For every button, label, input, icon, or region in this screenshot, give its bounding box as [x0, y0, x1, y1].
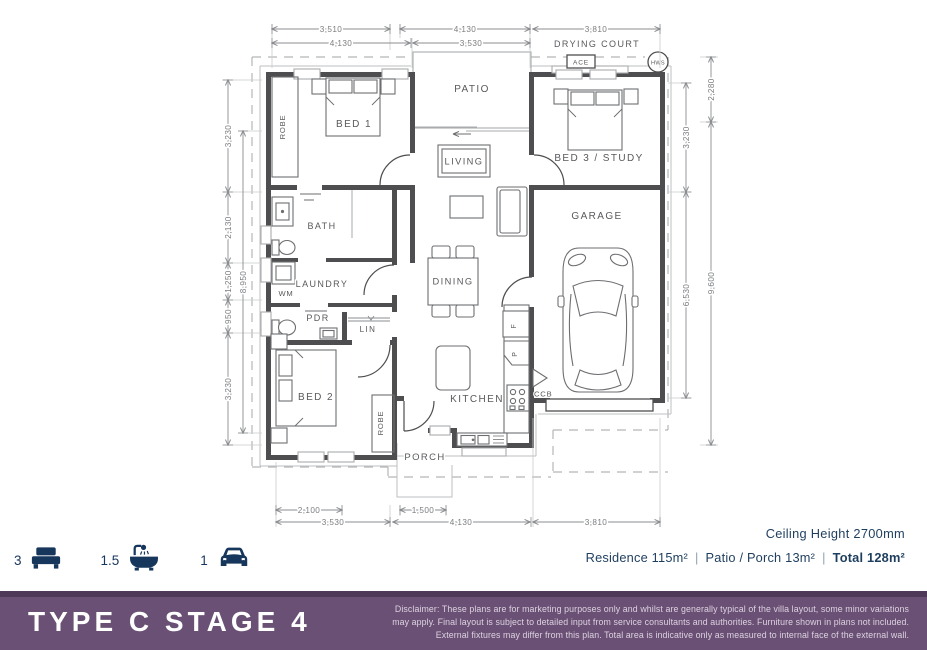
laundry-fixtures — [272, 262, 295, 284]
laundry-label: LAUNDRY — [296, 279, 349, 289]
bed2-label: BED 2 — [298, 392, 334, 403]
beds-summary: 3 — [14, 546, 61, 575]
robe2-label: ROBE — [376, 411, 385, 436]
dim-left-e: 3,230 — [224, 378, 233, 401]
linen-rail — [348, 316, 390, 321]
fridge-label: F — [511, 323, 518, 328]
robe1-label: ROBE — [278, 115, 287, 140]
patio-label: PATIO — [454, 84, 490, 95]
dim-right-outer-a: 2,280 — [707, 78, 716, 101]
dim-bottom-row1: 2,100 1,500 — [276, 505, 446, 515]
dim-left-outer: 3,230 2,130 1,250 950 3,230 — [223, 80, 233, 445]
hws-unit: HWS — [648, 52, 668, 72]
dim-left-b: 2,130 — [224, 216, 233, 239]
disclaimer-line: External fixtures may differ from this p… — [392, 629, 909, 642]
drying-court-label: DRYING COURT — [554, 39, 640, 49]
dim-right-outer: 2,280 9,600 — [706, 57, 716, 445]
dim-top1-a: 3,510 — [320, 25, 343, 34]
bed2-furniture — [271, 334, 336, 443]
residence-area: Residence 115m² — [586, 550, 688, 565]
dim-top2-a: 4,130 — [330, 39, 353, 48]
disclaimer: Disclaimer: These plans are for marketin… — [392, 603, 909, 642]
porch-label: PORCH — [404, 452, 445, 463]
dim-top-row2: 4,130 3,530 — [272, 38, 530, 48]
living-label: LIVING — [445, 157, 484, 167]
separator: | — [695, 550, 699, 565]
area-info: Ceiling Height 2700mm Residence 115m²|Pa… — [586, 526, 905, 565]
dim-top1-b: 4,130 — [454, 25, 477, 34]
bath-label: BATH — [308, 221, 337, 231]
ceiling-height: Ceiling Height 2700mm — [586, 526, 905, 541]
ccb-cupboard — [533, 369, 547, 387]
bath-icon — [128, 544, 160, 576]
garage-door — [546, 399, 653, 411]
footer-bar: TYPE C STAGE 4 Disclaimer: These plans a… — [0, 597, 927, 650]
dim-top1-c: 3,810 — [585, 25, 608, 34]
floor-plan-svg: ACE HWS BED 1 BED 2 BED 3 / STUDY PATIO … — [0, 0, 927, 530]
floor-plan: ACE HWS BED 1 BED 2 BED 3 / STUDY PATIO … — [0, 0, 927, 530]
disclaimer-line: may apply. Final layout is subject to de… — [392, 616, 909, 629]
dim-right-a: 3,230 — [682, 126, 691, 149]
car-icon — [217, 545, 251, 575]
bed3-study-label: BED 3 / STUDY — [554, 153, 643, 164]
summary-icons-row: 3 1.5 1 — [14, 541, 291, 579]
plan-title: TYPE C STAGE 4 — [28, 606, 311, 638]
dim-top-row1: 3,510 4,130 3,810 — [272, 24, 660, 34]
wm-label: WM — [278, 289, 293, 298]
pdr-label: PDR — [306, 313, 329, 323]
dim-left-c: 1,250 — [224, 270, 233, 293]
patio-porch-area: Patio / Porch 13m² — [706, 550, 816, 565]
ace-label: ACE — [573, 60, 589, 67]
garage-label: GARAGE — [571, 211, 622, 222]
car — [558, 248, 638, 392]
dim-left-inner: 8,950 — [238, 131, 248, 433]
bed-icon — [31, 546, 61, 575]
dim-bot2-a: 3,530 — [322, 518, 345, 527]
ccb-label: CCB — [534, 390, 552, 399]
kitchen-label: KITCHEN — [450, 394, 504, 405]
cars-summary: 1 — [200, 545, 251, 575]
beds-count: 3 — [14, 553, 22, 568]
dim-top2-b: 3,530 — [460, 39, 483, 48]
dim-left-d: 950 — [224, 309, 233, 324]
baths-count: 1.5 — [101, 553, 120, 568]
lin-label: LIN — [360, 325, 377, 334]
hws-label: HWS — [651, 60, 665, 66]
dim-bot1-a: 2,100 — [298, 506, 321, 515]
pantry-label: P — [512, 351, 519, 356]
baths-summary: 1.5 — [101, 544, 161, 576]
dim-right-outer-b: 9,600 — [707, 272, 716, 295]
area-breakdown: Residence 115m²|Patio / Porch 13m²|Total… — [586, 550, 905, 565]
bed1-label: BED 1 — [336, 119, 372, 130]
dim-right-inner: 3,230 6,530 — [681, 83, 691, 398]
dim-bot1-b: 1,500 — [412, 506, 435, 515]
dining-label: DINING — [433, 277, 474, 287]
dim-right-b: 6,530 — [682, 284, 691, 307]
dim-left-inner-a: 8,950 — [239, 271, 248, 294]
total-area: Total 128m² — [833, 550, 905, 565]
disclaimer-line: Disclaimer: These plans are for marketin… — [392, 603, 909, 616]
coffee-table — [450, 196, 483, 218]
dim-left-a: 3,230 — [224, 125, 233, 148]
ace-unit: ACE — [567, 55, 595, 68]
dim-bot2-b: 4,130 — [450, 518, 473, 527]
separator: | — [822, 550, 826, 565]
sofa — [497, 187, 527, 236]
bed3-furniture — [554, 89, 638, 150]
cars-count: 1 — [200, 553, 208, 568]
